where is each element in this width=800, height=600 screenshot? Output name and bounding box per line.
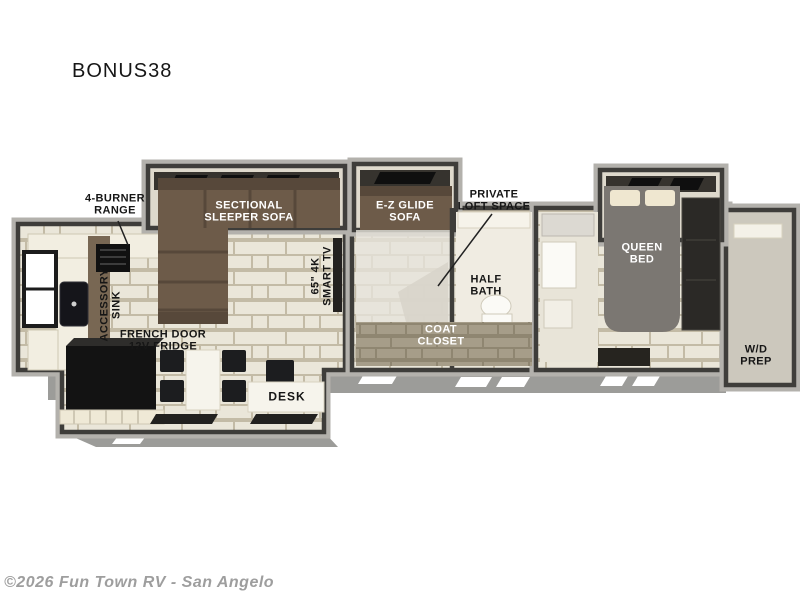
desk [248, 382, 324, 412]
desk-chair [266, 360, 294, 384]
bed-bench [598, 348, 650, 366]
bath-cabinet [544, 300, 572, 328]
skylight [374, 172, 436, 184]
wd-prep-section [726, 210, 794, 385]
washer-dryer-shelf [734, 224, 782, 238]
tv [333, 238, 342, 312]
bath-vanity [542, 242, 576, 288]
dinette-chair [222, 380, 246, 402]
wardrobe [682, 198, 720, 330]
bed-pillow [645, 190, 675, 206]
dinette-chair [160, 350, 184, 372]
dealer-watermark: ©2026 Fun Town RV - San Angelo [4, 574, 274, 592]
floor-mat [150, 414, 218, 424]
step-mark [455, 377, 492, 387]
shower [542, 214, 594, 236]
dinette-table [186, 350, 220, 410]
refrigerator [66, 346, 156, 412]
fridge-base [60, 410, 164, 424]
dinette-chair [222, 350, 246, 372]
floor-mat [250, 414, 318, 424]
dinette-chair [160, 380, 184, 402]
bed-pillow [610, 190, 640, 206]
floorplan-page: BONUS38 [0, 0, 800, 600]
vanity [458, 212, 530, 228]
coat-closet [356, 322, 532, 366]
queen-bed [604, 186, 680, 332]
floorplan-image [0, 0, 800, 600]
countertop [28, 330, 58, 370]
